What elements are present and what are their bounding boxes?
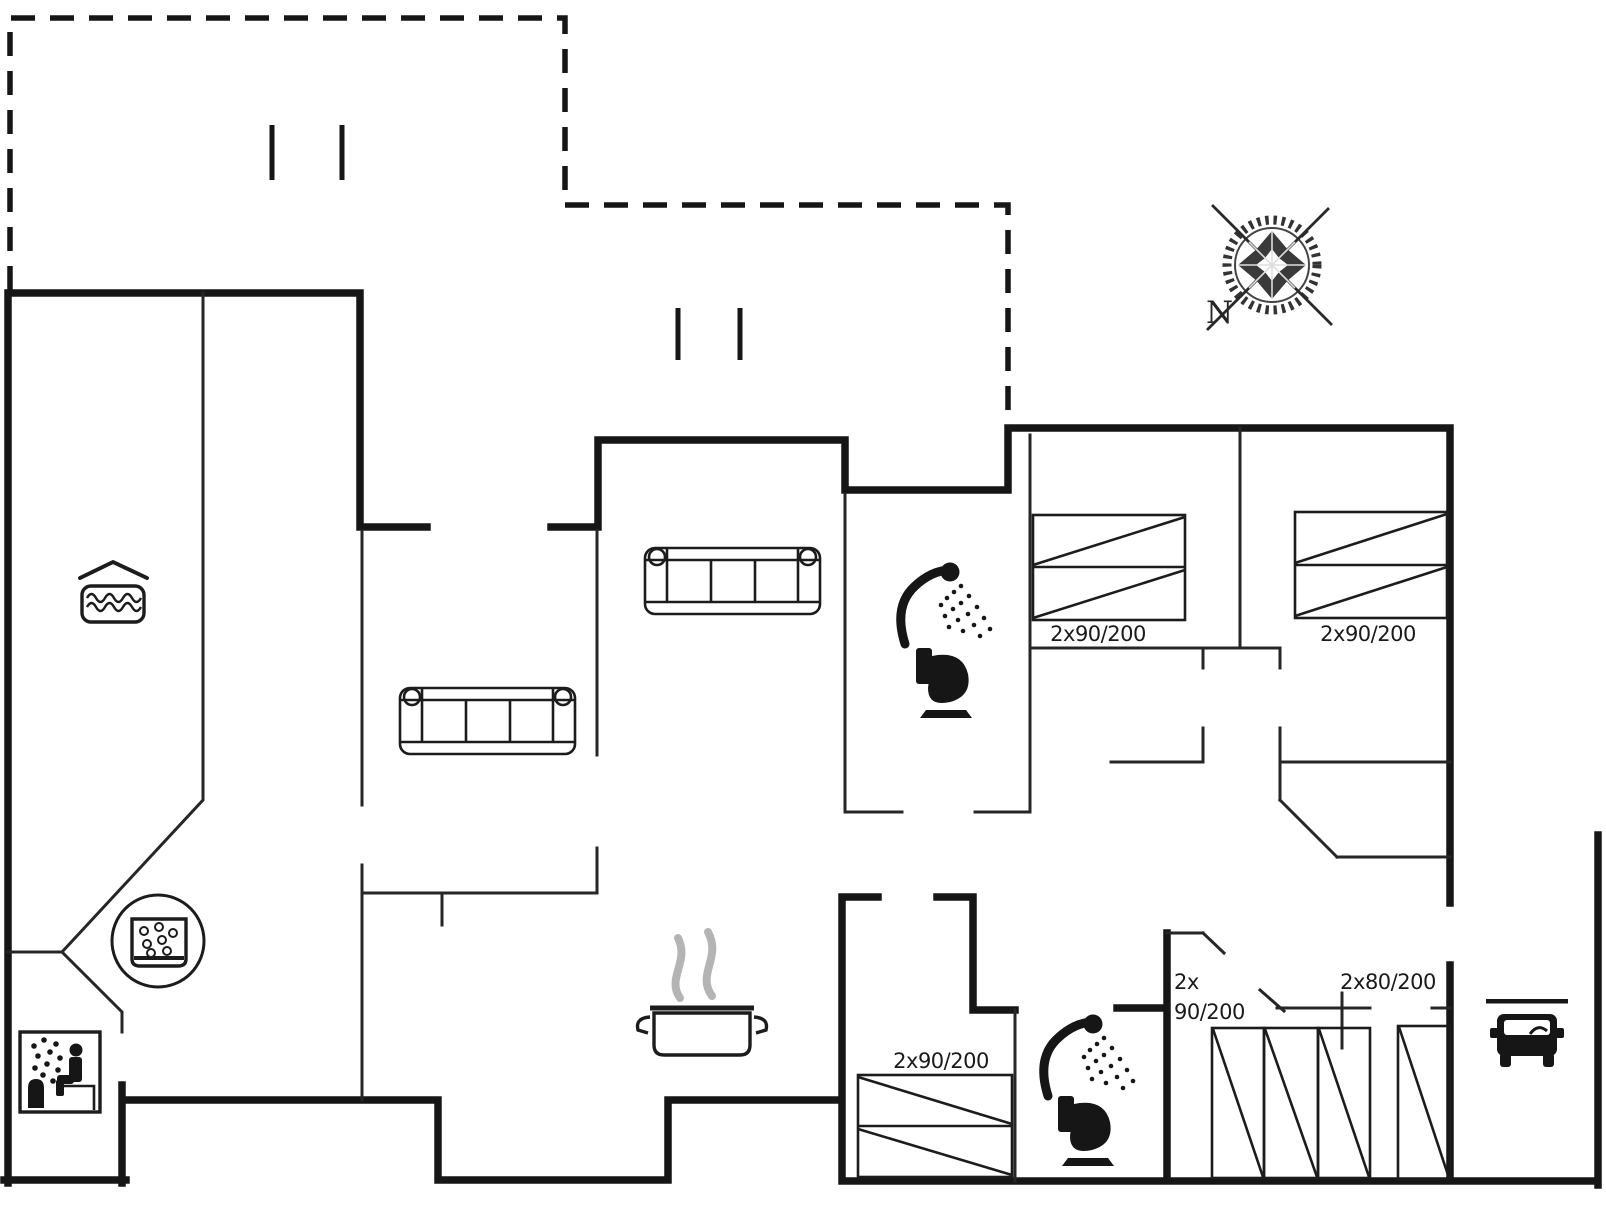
bed-size-label: 2x90/200 [1308, 621, 1428, 647]
sofa [400, 688, 575, 754]
floor-plan: 2x90/200 2x90/200 2x90/200 2x 90/200 2x8… [0, 0, 1606, 1205]
bed-size-label: 2x 90/200 [1174, 967, 1269, 1027]
terrace-dashed-outline [10, 18, 1008, 428]
car-icon [1486, 999, 1568, 1067]
single-mattresses [1212, 1026, 1450, 1179]
wall-outline [4, 293, 1598, 1185]
sauna-icon [20, 1032, 100, 1112]
window-marks [272, 125, 740, 360]
bed-size-label: 2x80/200 [1326, 969, 1450, 995]
bed-size-label-line: 2x [1174, 967, 1269, 997]
shower-icon [901, 563, 993, 645]
bed [1033, 515, 1185, 620]
bed-size-label-line: 90/200 [1174, 997, 1269, 1027]
bed-size-label: 2x90/200 [881, 1048, 1001, 1074]
toilet-icon [1058, 1096, 1114, 1166]
pool-icon [80, 562, 147, 622]
cooking-pot-icon [638, 1008, 767, 1055]
bed [1295, 512, 1447, 618]
compass-north-label: N [1206, 300, 1233, 326]
whirlpool-icon [112, 895, 204, 987]
bed-size-label: 2x90/200 [1038, 621, 1158, 647]
floor-plan-svg [0, 0, 1606, 1205]
sofa [645, 548, 820, 614]
bed [858, 1075, 1012, 1177]
shower-icon [1044, 1015, 1136, 1097]
steam-icon [675, 932, 712, 998]
toilet-icon [916, 648, 972, 718]
